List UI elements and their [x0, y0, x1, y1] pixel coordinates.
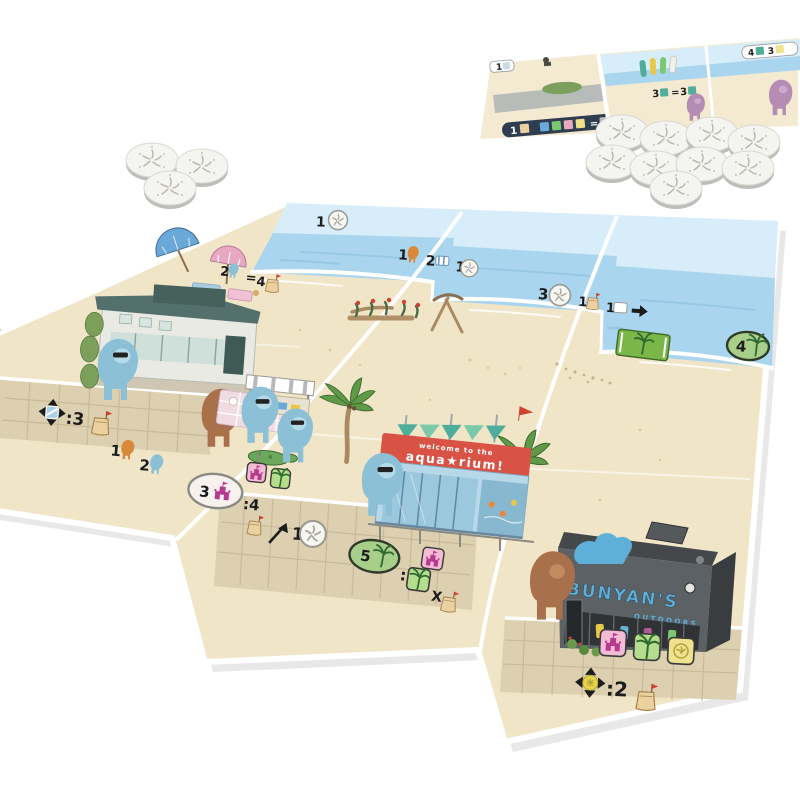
scene: 1 1 = 3 = 3	[0, 0, 800, 800]
palm-tile-value: 4	[735, 337, 747, 356]
store-sign	[685, 583, 695, 593]
castle-cost: :4	[242, 495, 260, 515]
move-left-cost: :3	[65, 409, 85, 431]
trade-eq: =	[671, 87, 680, 99]
move-right-cost: :2	[605, 677, 628, 702]
store-door	[566, 600, 582, 644]
sand-dollar-token[interactable]	[722, 151, 774, 189]
corner-a: 4	[748, 48, 755, 59]
count-blue: 2	[139, 456, 151, 475]
income-b: 2	[425, 253, 436, 270]
sand-dollar-cluster-right	[586, 115, 780, 209]
strip-value: 1	[510, 126, 518, 138]
sand-dollar-token[interactable]	[650, 171, 702, 209]
trade-b: 3	[680, 87, 688, 98]
sand-dollar-icon	[460, 259, 478, 277]
sand-dollar-token[interactable]	[144, 171, 196, 209]
tile1-value: 1	[316, 214, 326, 230]
trade-left-b: 4	[256, 275, 266, 291]
beach-bag	[253, 290, 259, 296]
sand-dollar-icon	[299, 520, 327, 548]
income-a: 1	[398, 247, 409, 264]
count-orange: 1	[110, 441, 122, 460]
product-photo: 1 1 = 3 = 3	[0, 0, 800, 800]
sand-dollar-cluster-left	[126, 143, 228, 209]
corner-b: 3	[768, 47, 775, 58]
trade-left-a: 2	[220, 264, 230, 280]
walk-pink-sign	[421, 547, 445, 571]
tile3-value: 3	[538, 285, 549, 304]
beach-chair-icon	[436, 256, 450, 266]
corner-cost-value: 1	[496, 63, 503, 74]
palm-towel	[616, 329, 671, 361]
sky-tile3-badge: 3	[537, 284, 571, 307]
roof-vent	[696, 556, 704, 564]
castle-count: 3	[198, 482, 210, 501]
sand-dollar-icon	[328, 210, 348, 230]
sand-dollar-icon	[549, 284, 571, 306]
tile-icon	[614, 302, 628, 313]
trade-a: 3	[652, 89, 660, 100]
